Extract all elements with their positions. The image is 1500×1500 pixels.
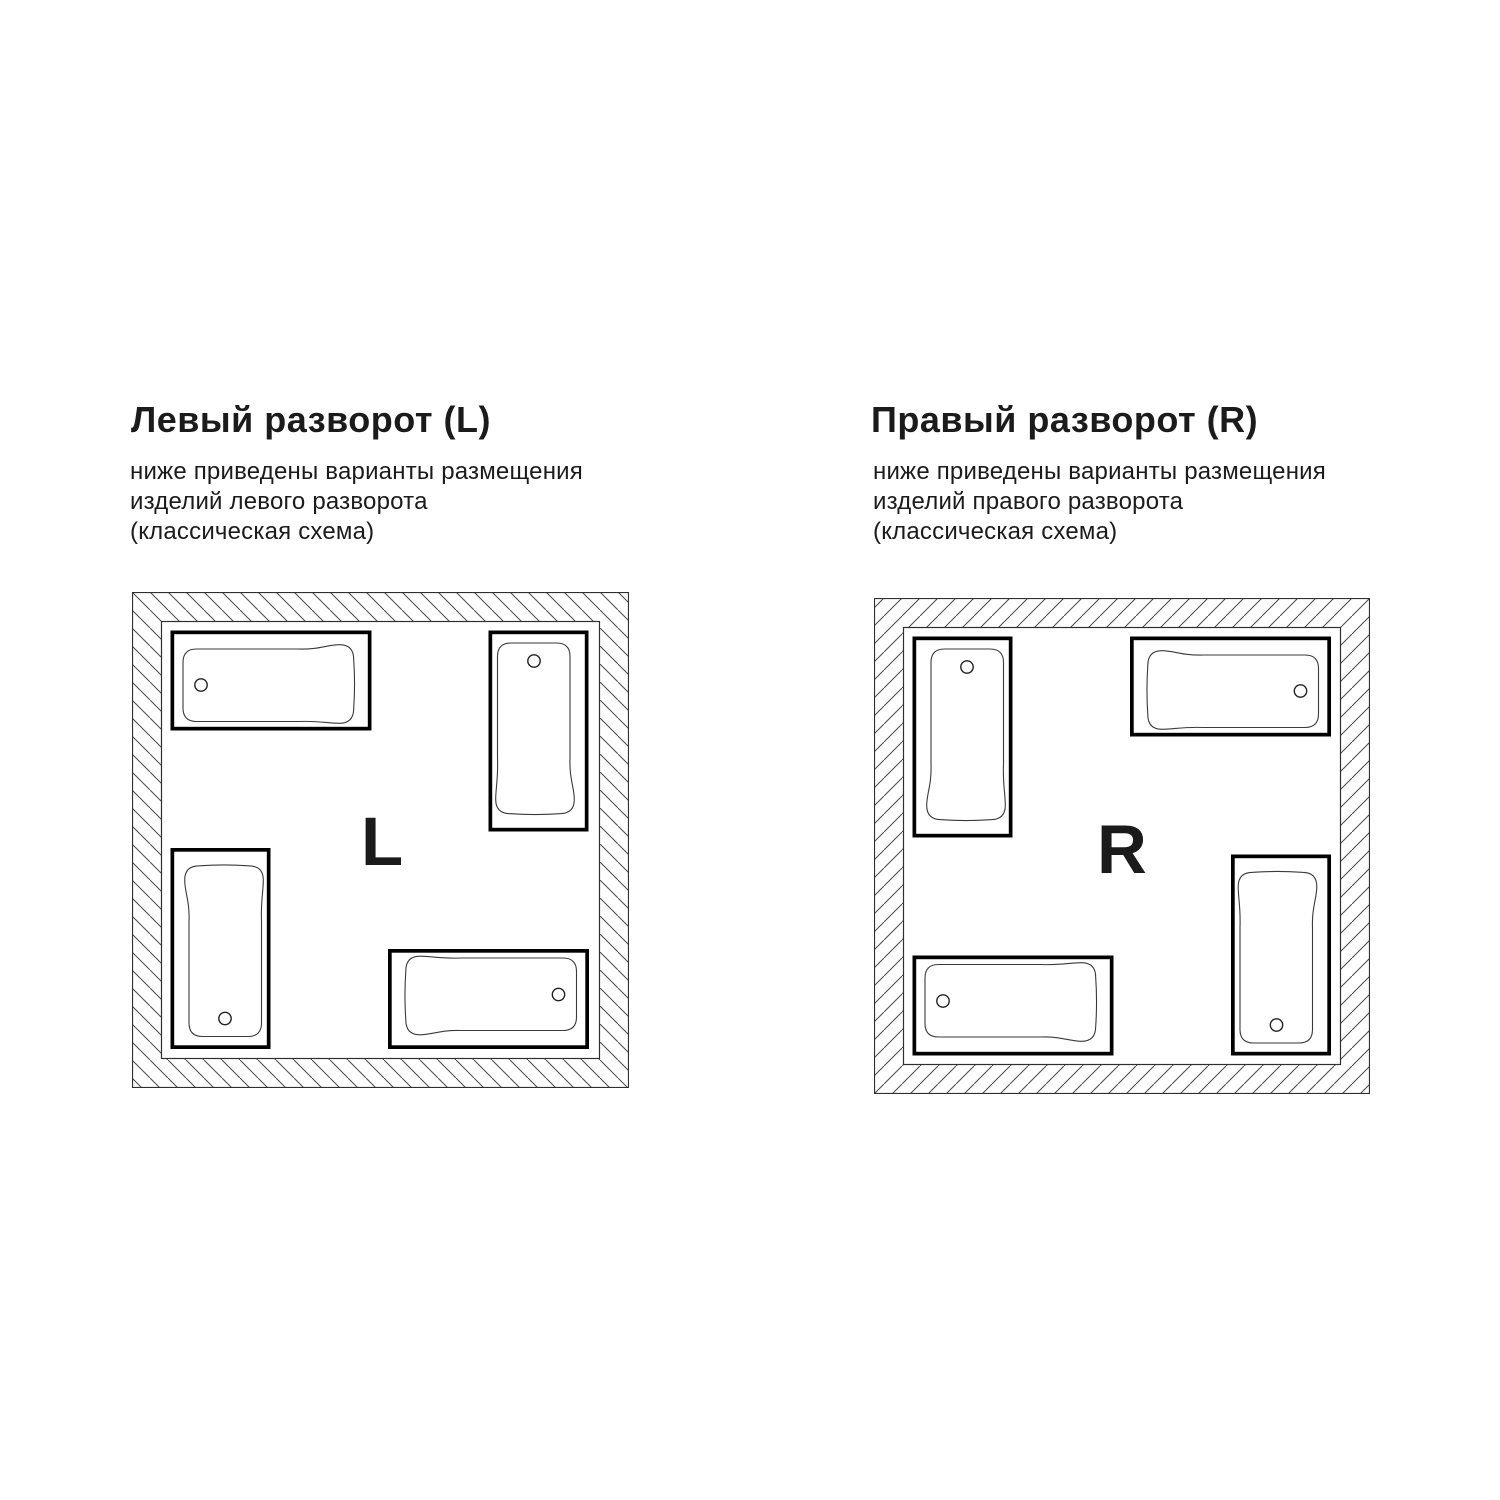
svg-text:L: L <box>361 803 403 880</box>
svg-text:R: R <box>1097 811 1147 888</box>
